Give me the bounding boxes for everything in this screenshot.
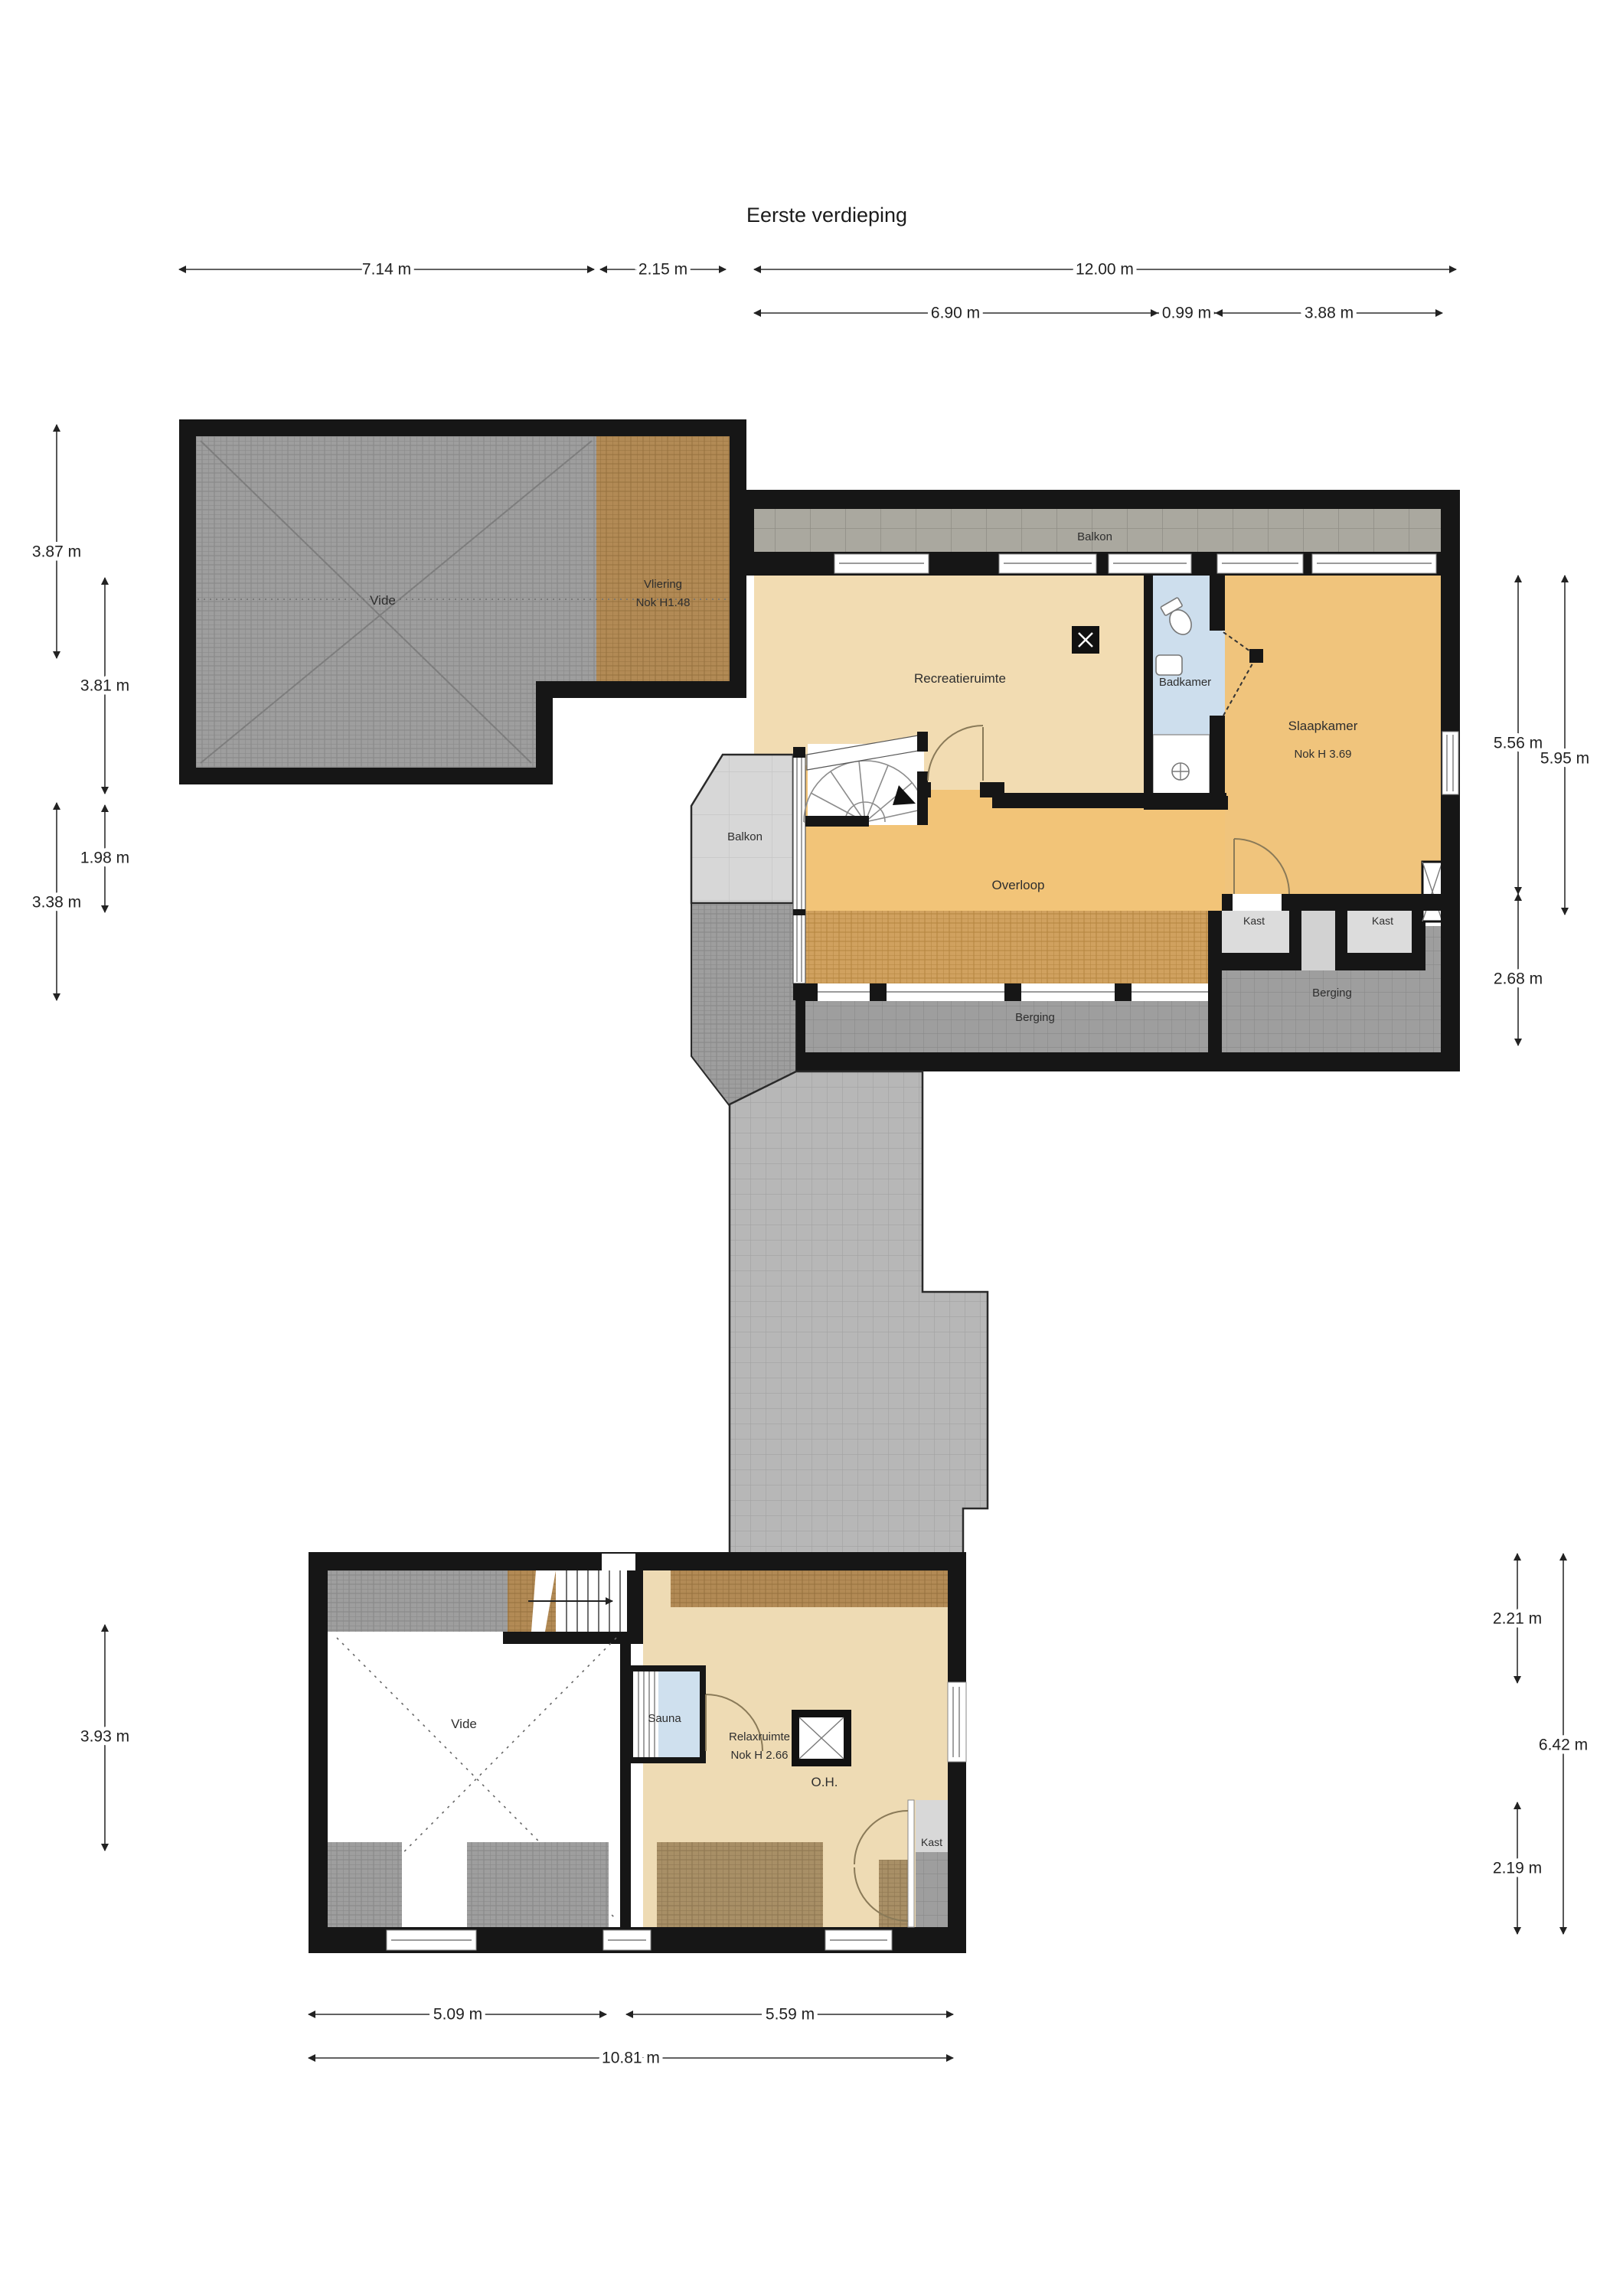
- svg-text:3.93 m: 3.93 m: [80, 1728, 129, 1746]
- svg-text:2.68 m: 2.68 m: [1494, 970, 1543, 988]
- slaapkamer-right-window: [1442, 732, 1458, 794]
- floor-plan-drawing: Eerste verdieping 7.14 m 2.15 m 12.00 m …: [0, 0, 1623, 2296]
- shower-icon: [1172, 763, 1189, 780]
- svg-text:3.88 m: 3.88 m: [1305, 305, 1354, 322]
- svg-text:3.87 m: 3.87 m: [32, 543, 81, 561]
- svg-text:5.59 m: 5.59 m: [766, 2006, 815, 2024]
- corridor-door-gap: [602, 1554, 635, 1570]
- room-label-kast-right: Kast: [1372, 915, 1393, 927]
- svg-text:6.42 m: 6.42 m: [1539, 1737, 1588, 1754]
- room-label-berging-bottom: Berging: [1015, 1011, 1055, 1024]
- slaapkamer-floor: [1225, 576, 1442, 894]
- room-label-kast-lower: Kast: [921, 1836, 942, 1848]
- svg-text:2.19 m: 2.19 m: [1493, 1860, 1542, 1877]
- svg-text:3.38 m: 3.38 m: [32, 894, 81, 912]
- room-label-balkon-left: Balkon: [727, 830, 763, 843]
- room-label-vide-upper: Vide: [370, 593, 396, 608]
- room-label-vide-lower: Vide: [451, 1717, 477, 1731]
- kast-lower-roof: [916, 1852, 948, 1927]
- room-label-berging-right: Berging: [1312, 987, 1352, 1000]
- room-label-slaapkamer: Slaapkamer: [1288, 719, 1358, 733]
- main-top-windows: [834, 554, 1436, 573]
- room-label-overloop: Overloop: [992, 878, 1045, 892]
- spiral-staircase: [804, 732, 928, 827]
- svg-text:1.98 m: 1.98 m: [80, 850, 129, 867]
- room-label-sauna: Sauna: [648, 1712, 681, 1725]
- dim-topsub-2: 0.99 m: [1158, 305, 1216, 322]
- svg-text:2.15 m: 2.15 m: [638, 261, 687, 279]
- roof-block-2: [467, 1842, 609, 1927]
- room-label-slaapkamer-nok: Nok H 3.69: [1294, 748, 1351, 761]
- svg-text:5.95 m: 5.95 m: [1540, 750, 1589, 768]
- chimney-shaft-icon: [1422, 862, 1442, 921]
- room-label-relaxruimte: Relaxruimte: [729, 1730, 790, 1743]
- svg-text:3.81 m: 3.81 m: [80, 677, 129, 695]
- svg-text:7.14 m: 7.14 m: [362, 261, 411, 279]
- svg-text:12.00 m: 12.00 m: [1076, 261, 1134, 279]
- room-label-kast-left: Kast: [1243, 915, 1265, 927]
- svg-text:5.56 m: 5.56 m: [1494, 735, 1543, 752]
- room-label-relaxruimte-nok: Nok H 2.66: [730, 1749, 788, 1762]
- main-building: Balkon Recreatieruimte Badkamer Slaapkam…: [691, 490, 1460, 1106]
- svg-text:6.90 m: 6.90 m: [931, 305, 980, 322]
- page-title: Eerste verdieping: [746, 204, 907, 227]
- roof-block-4: [879, 1860, 908, 1927]
- kast-gap-floor: [1301, 911, 1335, 970]
- floor-plan-page: Eerste verdieping 7.14 m 2.15 m 12.00 m …: [0, 0, 1623, 2296]
- lower-roof-strip: [328, 1570, 508, 1632]
- room-label-vliering: Vliering: [644, 578, 682, 591]
- lower-roof-brown-strip: [671, 1570, 948, 1607]
- ceiling-spot-icon: [1072, 626, 1099, 654]
- vliering-floor: [596, 436, 730, 681]
- svg-text:0.99 m: 0.99 m: [1162, 305, 1211, 322]
- room-label-vliering-nok: Nok H1.48: [636, 596, 691, 609]
- room-label-badkamer: Badkamer: [1159, 676, 1211, 689]
- balkon-window-column: [793, 747, 805, 1000]
- svg-text:2.21 m: 2.21 m: [1493, 1610, 1542, 1628]
- room-label-oh: O.H.: [811, 1775, 838, 1789]
- svg-text:10.81 m: 10.81 m: [602, 2050, 660, 2067]
- balkon-left-roof: [691, 903, 796, 1106]
- svg-text:5.09 m: 5.09 m: [433, 2006, 482, 2024]
- sink-icon: [1156, 655, 1182, 675]
- oh-shaft-icon: [792, 1710, 851, 1766]
- room-label-recreatieruimte: Recreatieruimte: [914, 671, 1006, 686]
- berging-bottom-floor: [805, 1001, 1217, 1052]
- lower-building: Vide Sauna Relaxruimte Nok H 2.66 O.H. K…: [309, 1552, 966, 1953]
- overloop-sloped-roof: [805, 911, 1225, 983]
- room-label-balkon-top: Balkon: [1077, 530, 1112, 543]
- roof-block-1: [328, 1842, 402, 1927]
- roof-block-3: [657, 1842, 823, 1927]
